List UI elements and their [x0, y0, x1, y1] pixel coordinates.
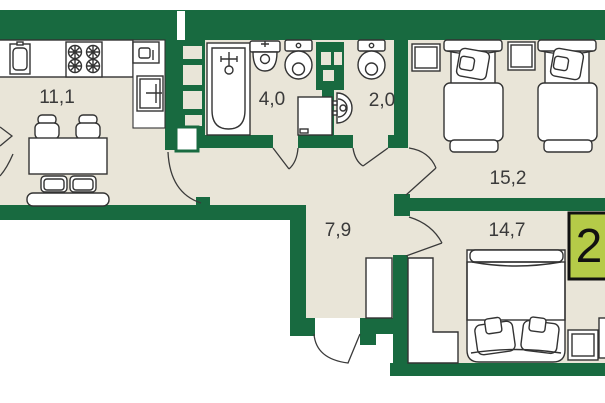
shaft-notch — [183, 91, 202, 109]
shaft-notch — [183, 46, 202, 59]
shaft-notch — [323, 70, 334, 81]
bench-icon — [27, 193, 109, 206]
shaft-notch — [321, 52, 331, 65]
wall-entrance-right-jamb — [360, 318, 376, 345]
nightstand-icon — [412, 44, 440, 71]
small-appliance-icon — [133, 42, 159, 63]
washing-machine-icon — [298, 97, 332, 135]
wall-wc-bedroom1 — [394, 10, 408, 147]
wall-bedrooms-divider-cap — [394, 194, 410, 216]
wall-hall-west — [290, 205, 306, 336]
wall-kitchen-bottom — [0, 205, 292, 220]
floorplan-svg: 11,1 4,0 2,0 15,2 7,9 14,7 2 — [0, 0, 605, 403]
kitchen-sink-icon — [10, 42, 30, 74]
rooms-count-badge: 2 — [569, 213, 605, 279]
shaft-notch — [185, 115, 202, 126]
hallway-closet-icon — [366, 258, 392, 318]
bedroom2-door-opening — [393, 216, 407, 256]
room-label-bedroom2: 14,7 — [489, 220, 526, 241]
room-label-bedroom1: 15,2 — [490, 168, 527, 189]
burner-icon — [87, 46, 100, 59]
wall-bath-bottom-right — [388, 135, 408, 148]
bedroom1-door-opening — [394, 147, 408, 195]
seat-icon — [73, 179, 93, 190]
refrigerator-icon — [137, 76, 163, 111]
burner-icon — [69, 46, 82, 59]
dining-table-icon — [29, 138, 107, 174]
room-hallway-upper-floor — [180, 148, 397, 210]
wall-top — [0, 10, 605, 40]
seat-icon — [44, 179, 64, 190]
entrance-door-arc — [314, 334, 360, 363]
junction-box — [176, 127, 198, 151]
rooms-count-badge-number: 2 — [576, 220, 603, 273]
chair-icon — [35, 123, 59, 139]
nightstand-icon — [508, 42, 535, 70]
wall-hall-east-lower — [393, 255, 408, 365]
toilet-icon — [285, 40, 312, 79]
floorplan-page: 11,1 4,0 2,0 15,2 7,9 14,7 2 — [0, 0, 605, 403]
room-label-hallway: 7,9 — [325, 220, 351, 241]
shaft-notch — [334, 52, 342, 65]
top-wall-slot — [177, 11, 185, 40]
shaft-notch — [183, 65, 202, 85]
single-bed-icon — [444, 40, 503, 152]
room-label-wc: 2,0 — [369, 90, 395, 111]
shaft-bath-wc — [316, 42, 344, 90]
burner-icon — [87, 60, 100, 73]
burner-icon — [69, 60, 82, 73]
wall-bedrooms-divider — [398, 198, 605, 211]
wall-entrance-left-jamb — [305, 318, 315, 336]
stove-icon — [66, 42, 102, 77]
chair-icon — [76, 123, 100, 139]
double-bed-icon — [467, 250, 565, 362]
nightstand-icon — [568, 330, 598, 360]
wall-entrance-bridge — [374, 318, 393, 334]
single-bed-icon — [538, 40, 597, 152]
cut-off-furniture-icon — [599, 318, 605, 358]
wall-bottom-right — [390, 363, 605, 376]
toilet-icon — [358, 40, 385, 79]
room-label-bathroom: 4,0 — [259, 89, 285, 110]
room-label-kitchen: 11,1 — [39, 87, 75, 108]
bathtub-icon — [207, 43, 250, 135]
